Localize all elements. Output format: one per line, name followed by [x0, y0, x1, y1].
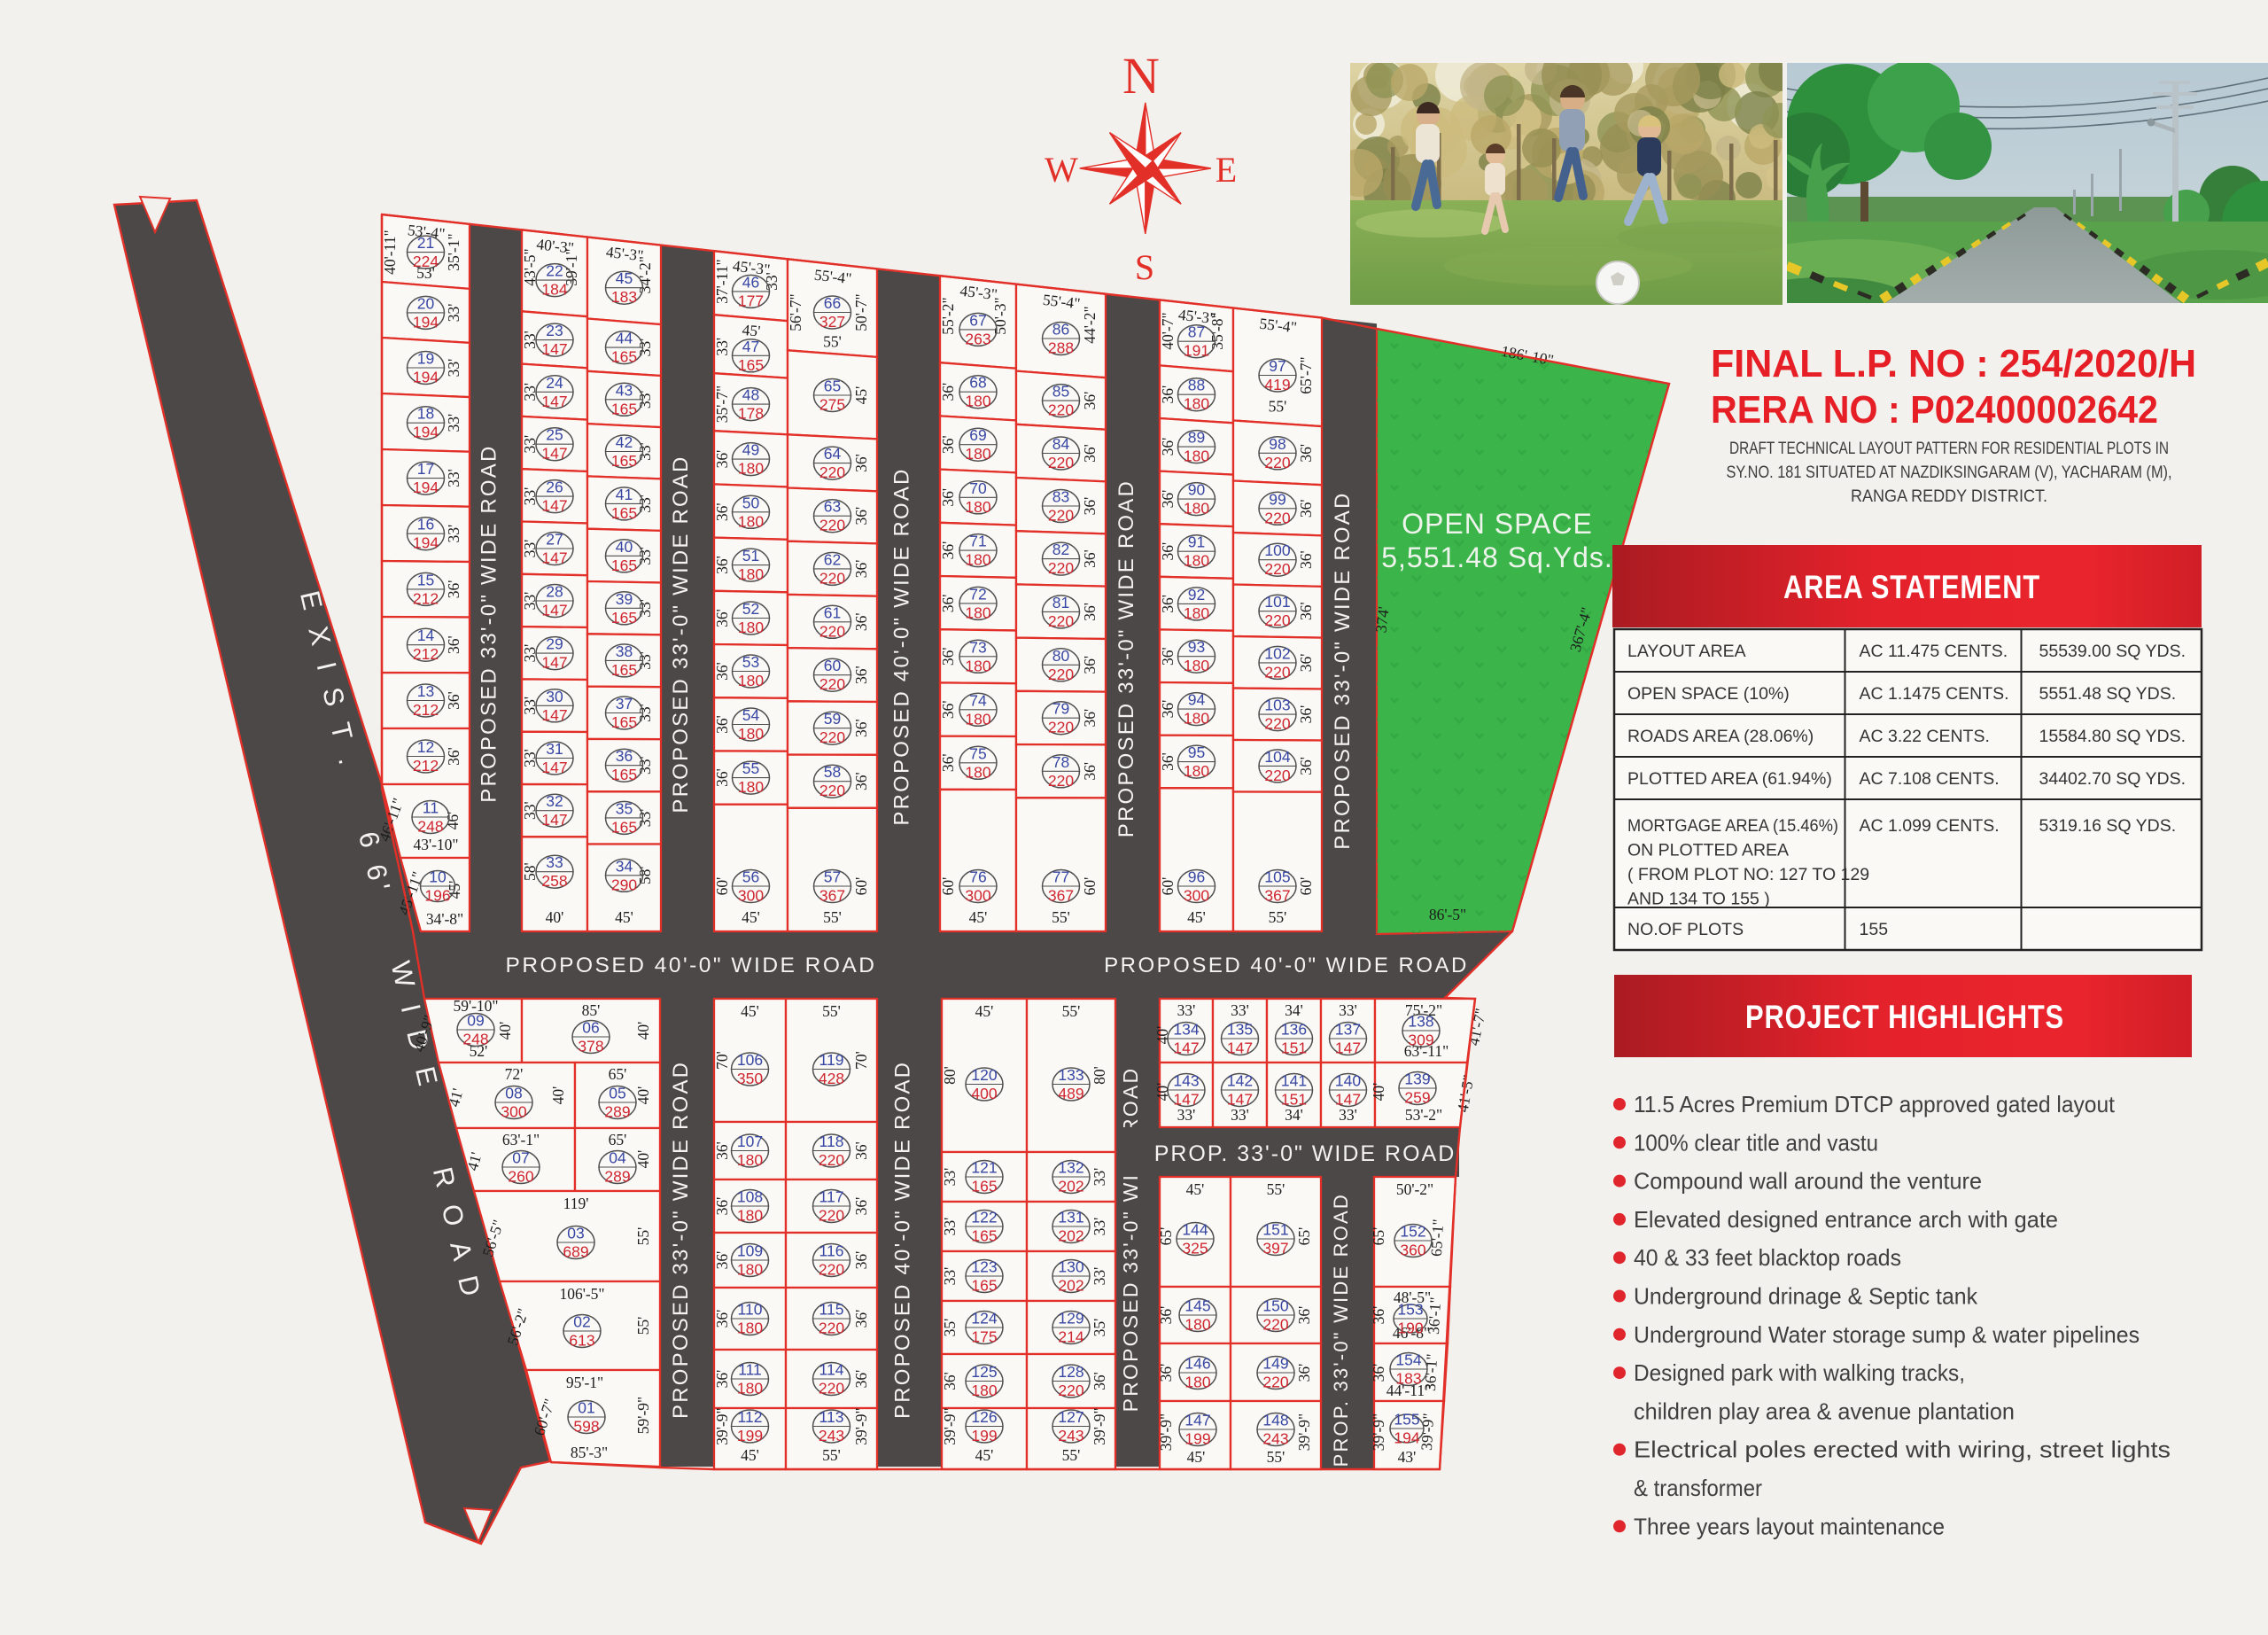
svg-text:180: 180 — [1184, 552, 1209, 570]
svg-text:86: 86 — [1052, 321, 1069, 339]
svg-text:Underground drinage & Septic t: Underground drinage & Septic tank — [1634, 1283, 1978, 1310]
svg-text:71: 71 — [969, 533, 986, 550]
svg-text:33': 33' — [1177, 1106, 1196, 1124]
svg-text:36': 36' — [713, 662, 731, 681]
svg-text:147: 147 — [541, 393, 567, 410]
svg-text:248: 248 — [462, 1031, 488, 1048]
svg-text:36': 36' — [1157, 1364, 1175, 1382]
svg-text:45': 45' — [741, 1446, 759, 1464]
svg-text:72': 72' — [505, 1065, 524, 1083]
svg-text:165: 165 — [971, 1227, 997, 1245]
svg-text:115: 115 — [819, 1301, 844, 1319]
svg-text:147: 147 — [541, 706, 567, 724]
svg-text:141: 141 — [1281, 1072, 1307, 1090]
svg-text:18: 18 — [417, 405, 434, 423]
svg-text:PROPOSED 33'-0" WIDE ROAD: PROPOSED 33'-0" WIDE ROAD — [1119, 1067, 1142, 1413]
svg-text:300: 300 — [738, 887, 764, 905]
svg-text:107: 107 — [737, 1133, 763, 1150]
svg-text:92: 92 — [1188, 586, 1205, 603]
svg-text:10: 10 — [429, 868, 447, 886]
svg-text:11.5 Acres Premium DTCP approv: 11.5 Acres Premium DTCP approved gated l… — [1634, 1091, 2116, 1117]
svg-text:70': 70' — [713, 1051, 731, 1070]
svg-text:220: 220 — [1048, 666, 1074, 683]
svg-text:36': 36' — [1081, 392, 1099, 410]
svg-text:40': 40' — [1370, 1083, 1387, 1102]
svg-text:08: 08 — [505, 1085, 522, 1102]
svg-text:142: 142 — [1227, 1072, 1253, 1090]
svg-text:5319.16 SQ YDS.: 5319.16 SQ YDS. — [2039, 816, 2177, 836]
svg-text:100: 100 — [1264, 541, 1290, 559]
svg-text:54: 54 — [742, 706, 760, 724]
svg-text:73: 73 — [969, 638, 986, 656]
svg-text:220: 220 — [1048, 772, 1074, 790]
svg-text:147: 147 — [1227, 1039, 1253, 1057]
svg-text:151: 151 — [1281, 1091, 1307, 1109]
svg-text:60': 60' — [1159, 877, 1177, 896]
svg-text:PLOTTED AREA (61.94%): PLOTTED AREA (61.94%) — [1627, 769, 1832, 789]
svg-text:367: 367 — [1264, 887, 1290, 905]
svg-text:Underground Water storage sump: Underground Water storage sump & water p… — [1634, 1321, 2140, 1348]
svg-text:60': 60' — [713, 877, 731, 896]
svg-text:34: 34 — [616, 857, 633, 875]
svg-text:259: 259 — [1404, 1089, 1430, 1107]
svg-text:154: 154 — [1395, 1351, 1421, 1369]
svg-text:147: 147 — [541, 445, 567, 463]
svg-text:165: 165 — [611, 348, 637, 366]
svg-text:194: 194 — [413, 313, 439, 331]
svg-text:36': 36' — [852, 1141, 870, 1160]
svg-text:109: 109 — [737, 1242, 763, 1260]
svg-text:91: 91 — [1188, 533, 1205, 551]
svg-text:45: 45 — [616, 269, 633, 287]
svg-text:106: 106 — [737, 1051, 763, 1069]
svg-text:127: 127 — [1058, 1408, 1084, 1426]
svg-text:121: 121 — [971, 1159, 997, 1177]
svg-text:147: 147 — [541, 497, 567, 515]
svg-text:25: 25 — [546, 426, 563, 444]
svg-text:220: 220 — [819, 517, 845, 534]
svg-text:42: 42 — [616, 433, 633, 451]
svg-text:RERA NO : P02400002642: RERA NO : P02400002642 — [1711, 388, 2158, 432]
svg-text:139: 139 — [1404, 1071, 1430, 1088]
svg-text:FINAL L.P. NO : 254/2020/H: FINAL L.P. NO : 254/2020/H — [1711, 342, 2196, 385]
svg-text:199: 199 — [737, 1427, 763, 1444]
svg-text:32: 32 — [546, 792, 563, 810]
svg-text:48: 48 — [742, 386, 759, 404]
svg-text:140: 140 — [1335, 1072, 1361, 1090]
svg-text:36': 36' — [939, 700, 957, 719]
svg-text:65': 65' — [1157, 1227, 1175, 1246]
svg-text:260: 260 — [508, 1168, 533, 1186]
svg-text:100% clear title and vastu: 100% clear title and vastu — [1634, 1129, 1878, 1156]
svg-text:45': 45' — [852, 386, 870, 405]
svg-text:220: 220 — [819, 463, 845, 481]
svg-text:99: 99 — [1269, 490, 1285, 508]
svg-text:34402.70 SQ YDS.: 34402.70 SQ YDS. — [2039, 769, 2186, 789]
svg-text:37: 37 — [616, 695, 633, 712]
svg-text:93: 93 — [1188, 638, 1205, 656]
svg-text:128: 128 — [1058, 1363, 1084, 1381]
svg-text:86'-5": 86'-5" — [1429, 906, 1466, 923]
svg-text:63'-1": 63'-1" — [502, 1131, 540, 1148]
svg-text:180: 180 — [965, 551, 990, 569]
svg-text:220: 220 — [819, 1380, 844, 1398]
svg-text:248: 248 — [417, 818, 443, 836]
svg-text:45': 45' — [1187, 1448, 1206, 1466]
svg-text:147: 147 — [1184, 1412, 1210, 1429]
svg-text:21: 21 — [417, 234, 434, 252]
svg-text:& transformer: & transformer — [1634, 1475, 1762, 1501]
svg-text:178: 178 — [738, 405, 764, 423]
svg-text:36': 36' — [941, 1372, 959, 1390]
svg-text:300: 300 — [1184, 887, 1209, 905]
svg-text:220: 220 — [1058, 1382, 1084, 1399]
svg-text:194: 194 — [413, 479, 439, 496]
svg-text:46': 46' — [444, 812, 462, 830]
svg-text:39'-9": 39'-9" — [852, 1407, 870, 1444]
svg-text:106'-5": 106'-5" — [559, 1285, 604, 1303]
svg-text:110: 110 — [738, 1301, 763, 1319]
svg-text:04: 04 — [609, 1149, 626, 1167]
svg-text:85'-3": 85'-3" — [571, 1444, 608, 1461]
svg-text:65'-1": 65'-1" — [1427, 1218, 1447, 1257]
svg-text:55539.00 SQ YDS.: 55539.00 SQ YDS. — [2039, 642, 2186, 661]
svg-text:40': 40' — [634, 1086, 652, 1105]
svg-text:45': 45' — [741, 1002, 759, 1020]
svg-text:36': 36' — [713, 1141, 731, 1160]
svg-text:36': 36' — [713, 556, 731, 574]
svg-text:224: 224 — [413, 253, 439, 270]
svg-text:50'-3": 50'-3" — [991, 297, 1009, 334]
svg-text:147: 147 — [541, 549, 567, 567]
svg-text:34'-8": 34'-8" — [426, 910, 463, 928]
svg-text:39'-9": 39'-9" — [1091, 1407, 1108, 1444]
svg-text:180: 180 — [1184, 500, 1209, 518]
svg-text:155: 155 — [1860, 920, 1889, 939]
svg-text:33': 33' — [445, 414, 462, 432]
svg-text:45': 45' — [742, 908, 760, 926]
svg-text:147: 147 — [541, 654, 567, 672]
svg-text:40'-7": 40'-7" — [1159, 312, 1177, 349]
svg-text:180: 180 — [965, 393, 990, 410]
svg-text:33': 33' — [1231, 1106, 1249, 1124]
svg-text:360: 360 — [1400, 1242, 1425, 1259]
svg-text:72: 72 — [969, 585, 986, 603]
svg-text:180: 180 — [965, 603, 990, 621]
svg-text:PROP. 33'-0" WIDE ROAD: PROP. 33'-0" WIDE ROAD — [1330, 1193, 1352, 1467]
svg-text:147: 147 — [1173, 1039, 1199, 1057]
svg-text:36': 36' — [713, 1370, 731, 1389]
svg-text:40': 40' — [634, 1022, 652, 1040]
svg-text:19: 19 — [417, 350, 434, 368]
svg-text:129: 129 — [1058, 1310, 1084, 1327]
svg-text:AC 1.099 CENTS.: AC 1.099 CENTS. — [1860, 816, 2000, 836]
svg-text:119': 119' — [563, 1195, 589, 1212]
svg-text:136: 136 — [1281, 1021, 1307, 1039]
svg-text:130: 130 — [1058, 1258, 1084, 1276]
svg-text:147: 147 — [541, 340, 567, 358]
svg-text:103: 103 — [1264, 697, 1290, 714]
svg-text:PROPOSED 33'-0" WIDE ROAD: PROPOSED 33'-0" WIDE ROAD — [1115, 479, 1138, 837]
svg-text:36': 36' — [1297, 550, 1315, 569]
svg-text:689: 689 — [563, 1243, 588, 1261]
svg-text:39'-9": 39'-9" — [1370, 1413, 1387, 1451]
svg-text:183: 183 — [611, 288, 637, 306]
svg-text:212: 212 — [413, 757, 439, 775]
svg-text:258: 258 — [541, 872, 567, 890]
svg-text:134: 134 — [1173, 1021, 1199, 1039]
svg-text:OPEN SPACE: OPEN SPACE — [1402, 508, 1593, 540]
svg-text:220: 220 — [1264, 715, 1290, 733]
svg-text:36': 36' — [852, 1197, 870, 1216]
svg-text:55': 55' — [823, 908, 842, 926]
svg-text:36': 36' — [1081, 497, 1099, 516]
svg-text:45': 45' — [975, 1446, 994, 1464]
svg-text:111: 111 — [738, 1361, 762, 1379]
svg-text:36': 36' — [1295, 1306, 1313, 1325]
svg-text:131: 131 — [1058, 1209, 1084, 1226]
svg-text:39'-9": 39'-9" — [713, 1407, 731, 1444]
svg-text:36': 36' — [445, 635, 462, 654]
svg-text:80: 80 — [1052, 647, 1070, 665]
svg-text:33': 33' — [445, 359, 462, 378]
svg-text:07: 07 — [512, 1149, 529, 1167]
svg-text:43: 43 — [616, 381, 633, 399]
svg-text:367: 367 — [1048, 887, 1074, 905]
svg-text:180: 180 — [738, 619, 764, 636]
svg-text:AC 3.22 CENTS.: AC 3.22 CENTS. — [1860, 727, 1990, 746]
svg-text:95'-1": 95'-1" — [566, 1374, 603, 1391]
svg-text:220: 220 — [1048, 612, 1074, 630]
svg-text:36': 36' — [1081, 444, 1099, 463]
svg-text:36': 36' — [939, 753, 957, 772]
svg-text:36': 36' — [1159, 385, 1177, 404]
svg-text:01: 01 — [578, 1399, 594, 1417]
svg-text:194: 194 — [413, 534, 439, 552]
svg-text:36: 36 — [616, 747, 633, 765]
svg-text:( FROM PLOT NO: 127 TO 129: ( FROM PLOT NO: 127 TO 129 — [1627, 865, 1869, 884]
svg-text:122: 122 — [971, 1209, 997, 1226]
svg-text:151: 151 — [1262, 1221, 1288, 1239]
svg-text:35'-7": 35'-7" — [713, 385, 731, 423]
svg-text:114: 114 — [819, 1361, 844, 1379]
svg-text:180: 180 — [738, 725, 764, 743]
svg-text:397: 397 — [1262, 1240, 1288, 1257]
svg-text:05: 05 — [609, 1085, 625, 1102]
svg-text:PROPOSED 33'-0" WIDE ROAD: PROPOSED 33'-0" WIDE ROAD — [669, 455, 693, 813]
svg-text:220: 220 — [819, 728, 845, 746]
svg-text:70': 70' — [852, 1051, 870, 1070]
svg-text:135: 135 — [1227, 1021, 1253, 1039]
svg-text:275: 275 — [819, 396, 845, 414]
svg-text:S: S — [1135, 247, 1154, 287]
svg-text:40: 40 — [616, 538, 633, 556]
svg-text:36': 36' — [1159, 490, 1177, 509]
svg-text:202: 202 — [1058, 1227, 1084, 1245]
svg-text:598: 598 — [573, 1418, 599, 1436]
svg-text:180: 180 — [1184, 1316, 1210, 1334]
svg-text:263: 263 — [965, 330, 990, 347]
svg-text:180: 180 — [737, 1207, 763, 1225]
svg-text:180: 180 — [965, 710, 990, 728]
svg-text:36': 36' — [852, 1310, 870, 1328]
svg-text:289: 289 — [604, 1103, 630, 1121]
svg-text:NO.OF PLOTS: NO.OF PLOTS — [1627, 920, 1744, 939]
svg-text:202: 202 — [1058, 1178, 1084, 1195]
svg-text:36': 36' — [852, 772, 870, 790]
svg-text:45': 45' — [615, 908, 633, 926]
svg-text:36': 36' — [852, 507, 870, 526]
svg-text:35': 35' — [941, 1319, 959, 1337]
svg-text:153: 153 — [1397, 1301, 1423, 1319]
svg-text:12: 12 — [417, 738, 434, 756]
svg-text:Compound wall around the ventu: Compound wall around the venture — [1634, 1168, 1982, 1195]
svg-text:212: 212 — [413, 701, 439, 719]
svg-text:147: 147 — [1335, 1091, 1361, 1109]
svg-text:39'-9": 39'-9" — [1417, 1413, 1437, 1451]
svg-text:180: 180 — [1184, 710, 1209, 728]
svg-text:65: 65 — [824, 378, 841, 395]
svg-text:309: 309 — [1408, 1032, 1433, 1049]
svg-text:33': 33' — [941, 1267, 959, 1286]
svg-text:220: 220 — [1264, 611, 1290, 629]
svg-text:33': 33' — [1339, 1106, 1357, 1124]
svg-text:102: 102 — [1264, 644, 1290, 662]
svg-text:PROPOSED 40'-0" WIDE ROAD: PROPOSED 40'-0" WIDE ROAD — [506, 954, 877, 977]
svg-text:55': 55' — [1269, 398, 1287, 416]
svg-text:33': 33' — [445, 304, 462, 323]
svg-text:243: 243 — [1058, 1427, 1084, 1444]
svg-text:55': 55' — [1267, 1180, 1285, 1198]
svg-text:220: 220 — [819, 675, 845, 693]
svg-text:35': 35' — [1091, 1319, 1108, 1337]
svg-text:165: 165 — [611, 452, 637, 470]
svg-text:138: 138 — [1408, 1013, 1433, 1031]
svg-text:AREA STATEMENT: AREA STATEMENT — [1783, 569, 2040, 605]
svg-text:180: 180 — [1184, 657, 1209, 674]
svg-text:289: 289 — [604, 1168, 630, 1186]
svg-text:165: 165 — [611, 504, 637, 522]
svg-text:36': 36' — [852, 560, 870, 579]
svg-text:55': 55' — [1062, 1446, 1081, 1464]
svg-text:Three years layout maintenance: Three years layout maintenance — [1634, 1513, 1945, 1539]
svg-text:118: 118 — [819, 1133, 844, 1150]
svg-text:03: 03 — [567, 1225, 584, 1242]
svg-text:87: 87 — [1188, 323, 1205, 341]
svg-text:22: 22 — [546, 262, 563, 280]
svg-text:96: 96 — [1188, 868, 1205, 886]
svg-text:180: 180 — [737, 1380, 763, 1398]
svg-text:105: 105 — [1264, 868, 1290, 886]
svg-text:220: 220 — [819, 1207, 844, 1225]
svg-text:36': 36' — [445, 580, 462, 599]
svg-text:199: 199 — [1184, 1430, 1210, 1448]
svg-text:98: 98 — [1269, 435, 1285, 453]
svg-text:MORTGAGE AREA (15.46%): MORTGAGE AREA (15.46%) — [1627, 816, 1838, 836]
svg-text:145: 145 — [1184, 1297, 1210, 1315]
svg-text:180: 180 — [737, 1320, 763, 1337]
svg-text:55': 55' — [1062, 1002, 1081, 1020]
svg-text:180: 180 — [965, 445, 990, 463]
svg-text:180: 180 — [738, 512, 764, 530]
svg-text:220: 220 — [1264, 767, 1290, 784]
svg-text:36': 36' — [713, 1310, 731, 1328]
svg-text:180: 180 — [971, 1382, 997, 1399]
svg-text:220: 220 — [819, 782, 845, 799]
svg-text:RANGA REDDY DISTRICT.: RANGA REDDY DISTRICT. — [1851, 487, 2047, 506]
svg-text:39: 39 — [616, 590, 633, 608]
svg-text:37'-11": 37'-11" — [713, 259, 731, 303]
svg-text:36': 36' — [1297, 654, 1315, 673]
svg-text:45': 45' — [1186, 1180, 1205, 1198]
svg-text:180: 180 — [965, 657, 990, 674]
svg-text:SY.NO. 181 SITUATED AT NAZDIKS: SY.NO. 181 SITUATED AT NAZDIKSINGARAM (V… — [1727, 463, 2172, 482]
svg-text:165: 165 — [611, 609, 637, 627]
svg-text:61: 61 — [824, 603, 841, 621]
svg-text:300: 300 — [501, 1103, 526, 1121]
svg-text:55': 55' — [634, 1317, 652, 1335]
svg-text:350: 350 — [737, 1070, 763, 1087]
svg-text:165: 165 — [611, 557, 637, 574]
svg-text:119: 119 — [819, 1051, 844, 1069]
svg-text:36': 36' — [1081, 549, 1099, 568]
svg-text:180: 180 — [1184, 604, 1209, 622]
svg-text:175: 175 — [971, 1328, 997, 1346]
svg-text:66: 66 — [824, 294, 841, 312]
svg-text:104: 104 — [1264, 748, 1290, 766]
svg-text:02: 02 — [573, 1313, 590, 1331]
svg-text:34': 34' — [1285, 1106, 1303, 1124]
svg-text:147: 147 — [1173, 1091, 1199, 1109]
svg-text:180: 180 — [738, 565, 764, 583]
svg-text:11: 11 — [423, 799, 439, 817]
svg-text:36': 36' — [939, 541, 957, 560]
svg-text:79: 79 — [1052, 700, 1069, 718]
svg-text:50'-2": 50'-2" — [1396, 1180, 1433, 1198]
svg-text:151: 151 — [1281, 1039, 1307, 1057]
svg-text:367: 367 — [819, 887, 845, 905]
svg-text:55': 55' — [634, 1227, 652, 1246]
svg-text:46: 46 — [742, 273, 759, 291]
svg-text:23: 23 — [546, 322, 563, 339]
svg-text:29: 29 — [546, 635, 563, 653]
svg-text:60: 60 — [824, 657, 842, 674]
svg-text:36': 36' — [713, 502, 731, 521]
svg-text:09: 09 — [467, 1012, 484, 1030]
svg-text:36': 36' — [1159, 752, 1177, 771]
svg-text:36': 36' — [1081, 709, 1099, 728]
svg-text:36': 36' — [713, 715, 731, 734]
svg-text:Electrical poles erected with: Electrical poles erected with wiring, st… — [1634, 1436, 2171, 1463]
svg-text:400: 400 — [971, 1085, 997, 1102]
svg-text:40 & 33 feet blacktop roads: 40 & 33 feet blacktop roads — [1634, 1244, 1901, 1271]
svg-text:28: 28 — [546, 583, 563, 601]
svg-text:33': 33' — [1177, 1001, 1196, 1019]
svg-text:LAYOUT AREA: LAYOUT AREA — [1627, 642, 1746, 661]
svg-text:180: 180 — [738, 460, 764, 478]
svg-text:165: 165 — [611, 400, 637, 417]
svg-text:300: 300 — [965, 887, 990, 905]
svg-text:PROPOSED 33'-0" WIDE ROAD: PROPOSED 33'-0" WIDE ROAD — [478, 445, 501, 803]
svg-text:AC 7.108 CENTS.: AC 7.108 CENTS. — [1860, 769, 2000, 789]
svg-text:84: 84 — [1052, 435, 1070, 453]
svg-text:62: 62 — [824, 550, 841, 568]
svg-text:40': 40' — [634, 1150, 652, 1169]
svg-text:36': 36' — [939, 647, 957, 666]
svg-text:27: 27 — [546, 531, 563, 549]
svg-text:220: 220 — [1048, 401, 1074, 419]
svg-text:214: 214 — [1058, 1328, 1084, 1346]
